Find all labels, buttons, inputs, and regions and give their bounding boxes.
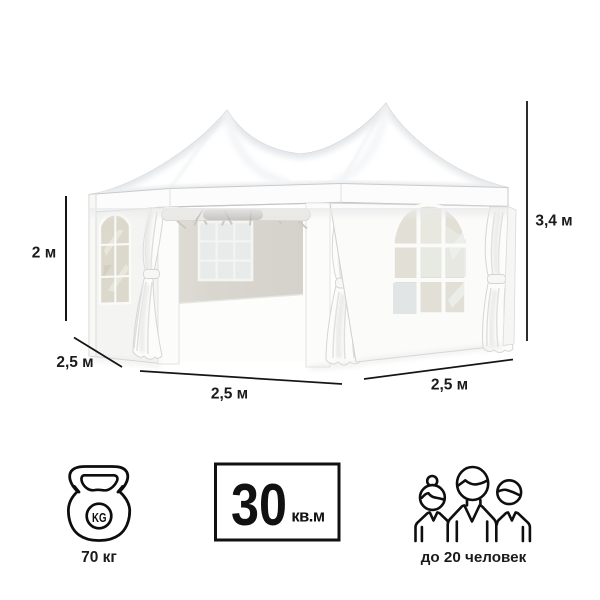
svg-text:2,5 м: 2,5 м	[211, 386, 248, 403]
svg-text:30: 30	[231, 472, 287, 538]
svg-text:3,4 м: 3,4 м	[535, 213, 572, 230]
svg-text:до 20 человек: до 20 человек	[421, 549, 527, 566]
svg-text:70 кг: 70 кг	[81, 549, 117, 566]
svg-text:2,5 м: 2,5 м	[56, 354, 93, 371]
svg-text:кв.м: кв.м	[291, 508, 324, 526]
svg-text:2 м: 2 м	[32, 245, 56, 262]
svg-text:KG: KG	[92, 510, 107, 525]
svg-text:2,5 м: 2,5 м	[431, 377, 468, 394]
